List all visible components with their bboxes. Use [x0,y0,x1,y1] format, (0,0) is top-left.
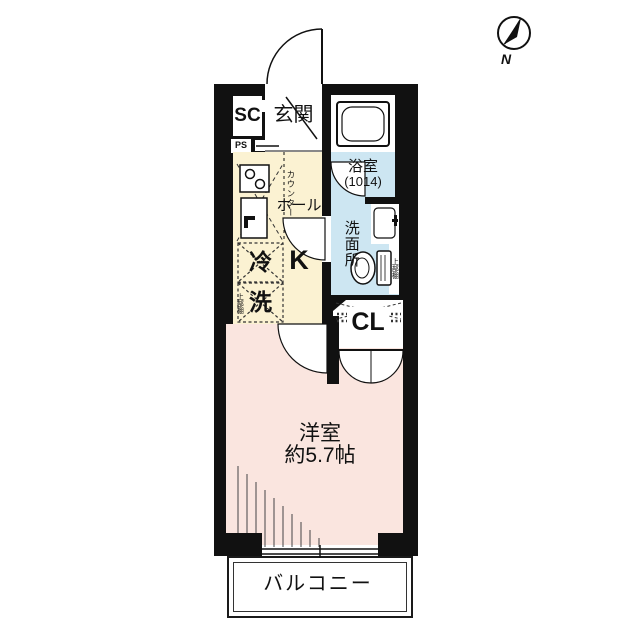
balcony-label: バルコニー [227,571,409,597]
counter-label: カウンター [286,150,295,238]
upper-shelf-left-label: 上部棚 [236,287,243,319]
closet-label: CL [347,307,389,337]
room-bath-tub-area [331,95,395,152]
shoe-closet-label: SC [233,96,262,136]
fridge-label: 冷 [238,243,283,282]
main-room-label: 洋室 約5.7帖 [250,420,390,470]
entrance-label: 玄関 [265,95,322,135]
wall-window-right [378,533,404,549]
bathroom-name: 浴室 [348,159,378,175]
kitchen-label: K [284,240,314,280]
pipe-space-label: PS [231,139,251,153]
counter-strip [255,140,282,151]
hall-label: ホール [276,197,322,215]
main-room-name: 洋室 [299,423,341,445]
compass-north-label: N [496,50,516,68]
bathroom-size: (1014) [344,175,382,189]
bath-door-gap [331,197,365,204]
basin-area [371,204,399,244]
bathroom-label: 浴室 (1014) [331,155,395,193]
floor-plan: SC 玄関 PS カウンター 浴室 (1014) ホール K 冷 洗 上部棚 洗… [0,0,640,639]
washroom-label: 洗面所 [343,210,359,278]
wall-door-pier [327,316,339,384]
washer-label: 洗 [238,283,283,322]
window-gap [262,545,378,556]
compass-icon [498,17,530,49]
upper-shelf-right-label: 上部棚 [391,251,398,285]
main-room-size: 約5.7帖 [284,445,355,467]
wall-window-left [226,533,262,549]
